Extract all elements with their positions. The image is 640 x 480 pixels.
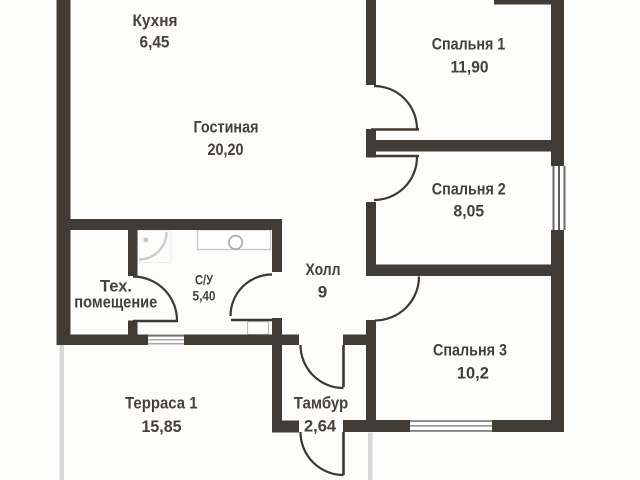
svg-text:15,85: 15,85 [142,417,182,436]
svg-text:11,90: 11,90 [451,57,489,76]
svg-text:помещение: помещение [74,293,157,312]
svg-text:Гостиная: Гостиная [194,118,259,137]
svg-text:20,20: 20,20 [208,140,244,159]
svg-text:9: 9 [318,283,327,302]
svg-text:Спальня 1: Спальня 1 [432,35,506,54]
svg-text:5,40: 5,40 [193,288,216,304]
svg-text:С/У: С/У [195,271,213,287]
svg-text:Холл: Холл [306,260,341,279]
svg-text:10,2: 10,2 [457,364,489,383]
svg-text:Тамбур: Тамбур [294,394,349,413]
svg-text:2,64: 2,64 [304,417,337,436]
svg-text:Спальня 3: Спальня 3 [433,341,507,360]
svg-text:Кухня: Кухня [133,11,178,30]
svg-text:Спальня 2: Спальня 2 [432,180,506,199]
svg-text:6,45: 6,45 [140,33,170,52]
svg-text:8,05: 8,05 [454,201,485,220]
svg-text:Терраса 1: Терраса 1 [125,394,198,413]
